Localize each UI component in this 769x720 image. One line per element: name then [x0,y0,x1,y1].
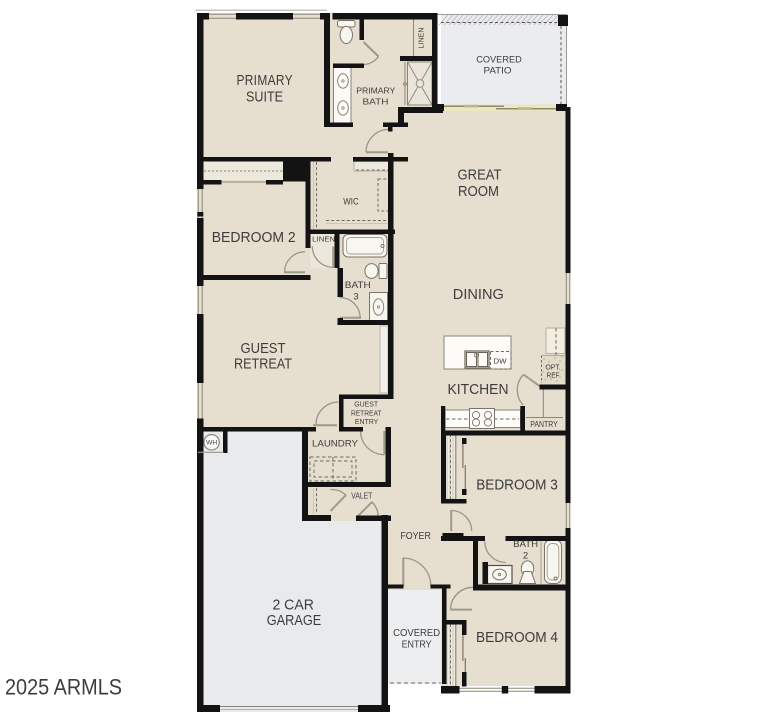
svg-text:LAUNDRY: LAUNDRY [312,439,359,450]
svg-text:2: 2 [523,551,528,562]
svg-text:2025 ARMLS: 2025 ARMLS [5,675,122,700]
svg-text:BEDROOM 3: BEDROOM 3 [476,478,558,494]
svg-text:GREAT: GREAT [458,168,502,184]
svg-text:SUITE: SUITE [246,90,283,106]
svg-text:FOYER: FOYER [400,531,431,542]
svg-text:WIC: WIC [343,197,359,207]
svg-text:LINEN: LINEN [419,28,426,49]
svg-text:GUEST: GUEST [241,341,286,357]
svg-text:BATH: BATH [363,98,389,107]
svg-text:ENTRY: ENTRY [402,640,432,651]
svg-text:ROOM: ROOM [458,184,499,200]
svg-text:KITCHEN: KITCHEN [448,382,509,398]
svg-text:BATH: BATH [513,539,538,550]
svg-text:GARAGE: GARAGE [267,613,322,629]
svg-text:OPT.: OPT. [546,364,561,371]
svg-text:COVERED: COVERED [476,55,522,66]
svg-text:COVERED: COVERED [393,628,440,639]
svg-text:BEDROOM 2: BEDROOM 2 [212,230,296,246]
svg-text:PRIMARY: PRIMARY [236,73,293,89]
svg-text:RETREAT: RETREAT [234,357,292,373]
svg-text:2 CAR: 2 CAR [272,598,314,614]
svg-text:PRIMARY: PRIMARY [356,87,396,96]
svg-text:LINEN: LINEN [312,235,335,244]
svg-text:PATIO: PATIO [484,66,512,77]
svg-text:BATH: BATH [345,280,371,291]
svg-text:3: 3 [353,292,358,303]
svg-text:DINING: DINING [453,287,504,303]
svg-text:REF: REF [547,373,560,380]
svg-text:DW: DW [494,359,507,366]
svg-text:BEDROOM 4: BEDROOM 4 [476,630,558,646]
svg-text:VALET: VALET [351,492,372,501]
svg-text:PANTRY: PANTRY [530,420,558,429]
svg-text:WH: WH [206,440,217,447]
svg-text:ENTRY: ENTRY [355,417,379,426]
